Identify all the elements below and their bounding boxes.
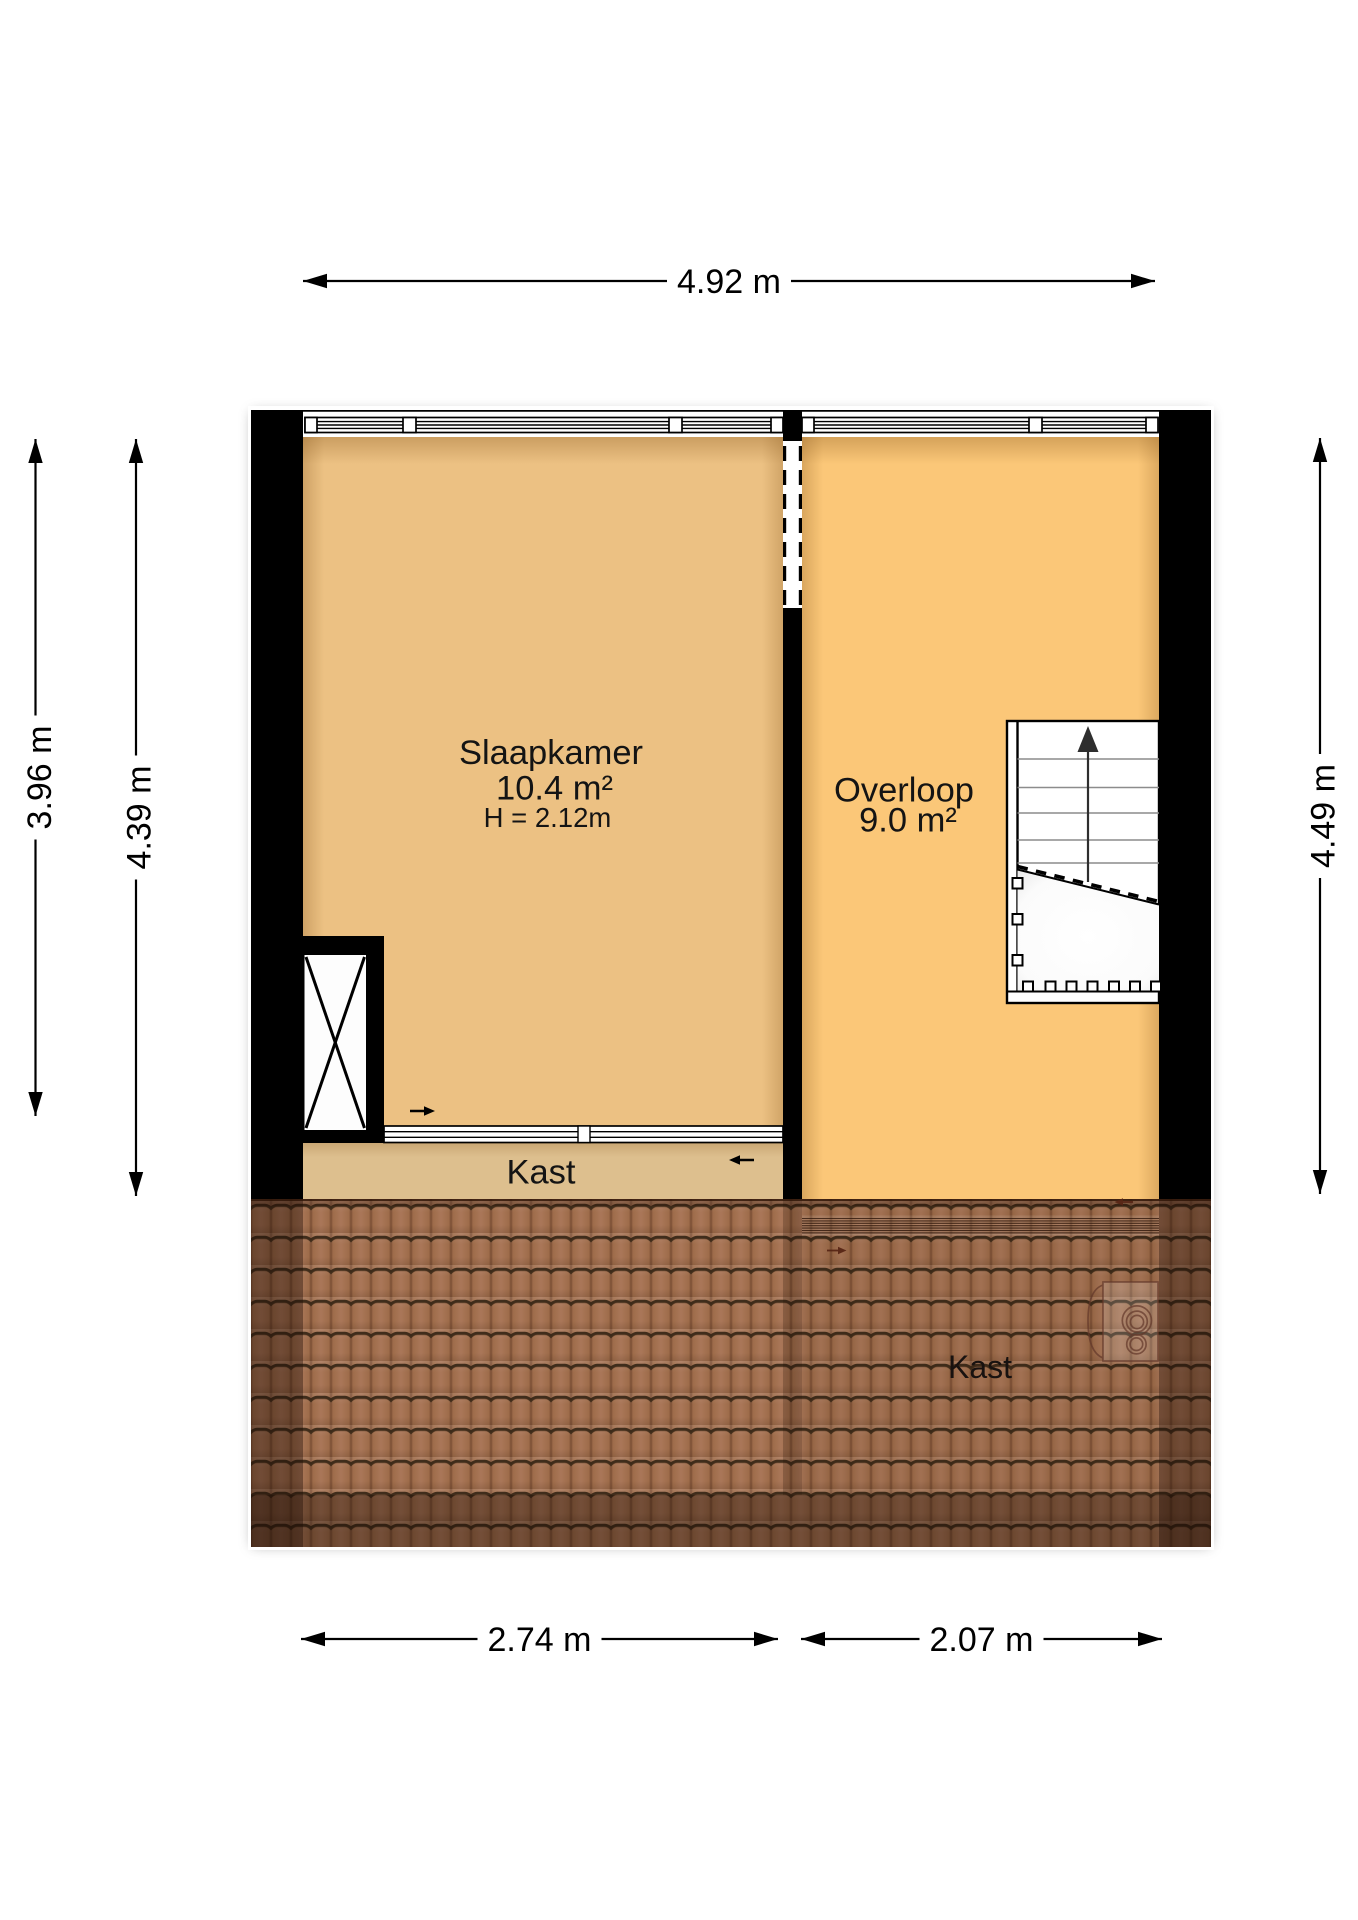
svg-text:3.96 m: 3.96 m (21, 726, 59, 830)
svg-text:Kast: Kast (506, 1154, 575, 1192)
svg-text:H = 2.12m: H = 2.12m (484, 802, 612, 833)
svg-text:9.0 m²: 9.0 m² (859, 802, 957, 840)
svg-text:Slaapkamer: Slaapkamer (459, 734, 643, 772)
svg-text:2.07 m: 2.07 m (930, 1621, 1034, 1659)
svg-text:4.92 m: 4.92 m (677, 263, 781, 301)
svg-text:4.49 m: 4.49 m (1305, 764, 1343, 868)
svg-text:Kast: Kast (948, 1349, 1012, 1385)
svg-text:2.74 m: 2.74 m (488, 1621, 592, 1659)
svg-text:4.39 m: 4.39 m (121, 766, 159, 870)
